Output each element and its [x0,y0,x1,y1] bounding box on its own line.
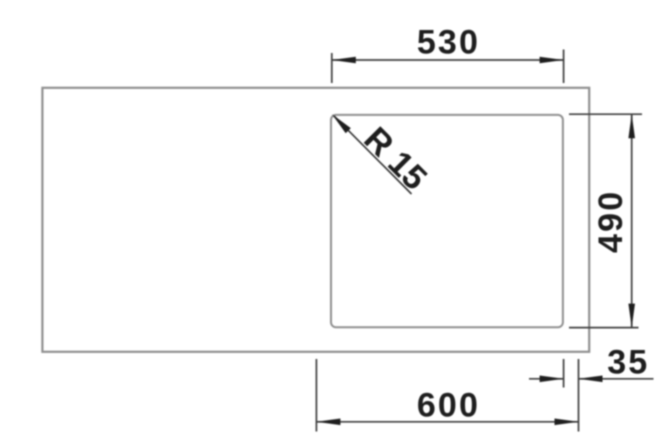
svg-text:490: 490 [592,190,630,253]
svg-text:35: 35 [607,344,649,382]
svg-text:530: 530 [417,24,480,62]
svg-text:600: 600 [417,387,480,425]
